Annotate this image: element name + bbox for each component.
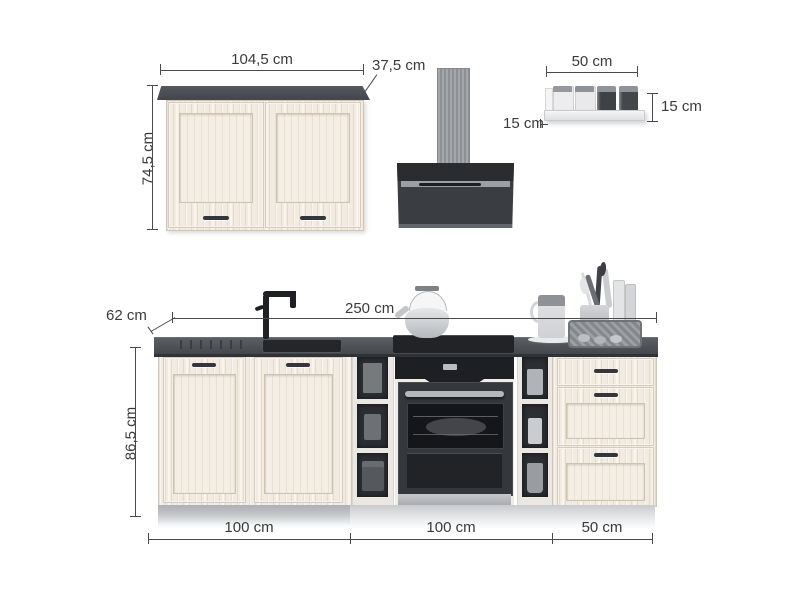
door-panel: [264, 374, 333, 494]
wall-cabinet-depth-label: 37,5 cm: [372, 57, 425, 74]
shelf-width-label: 50 cm: [546, 53, 638, 70]
kettle-body: [405, 308, 449, 338]
door-handle: [192, 363, 216, 367]
base-width-label: 250 cm: [345, 300, 394, 317]
shelf-compartment: [357, 453, 388, 497]
shelf-height-label: 15 cm: [661, 98, 702, 115]
oven-lower-panel: [407, 453, 502, 488]
wall-cabinet-right-handle: [300, 216, 326, 220]
storage-box: [362, 461, 384, 491]
tick: [130, 347, 141, 348]
sink-base-cabinet: [158, 353, 352, 507]
wall-cabinet-height-label: 74,5 cm: [140, 124, 157, 194]
door-handle: [286, 363, 310, 367]
wall-cabinet-width-line: [160, 70, 364, 71]
oven-control-panel: [395, 356, 514, 379]
shelf-compartment: [522, 404, 548, 448]
dark-jar: [619, 88, 638, 112]
base-depth-label: 62 cm: [106, 307, 147, 324]
cooktop: [393, 335, 514, 353]
oven-handle: [405, 391, 504, 397]
wall-cabinet-cornice: [157, 86, 370, 100]
egg: [578, 334, 590, 342]
shelf-depth-pointer: [540, 124, 548, 125]
segment-1-label: 100 cm: [148, 519, 350, 536]
egg: [594, 336, 606, 344]
base-height-label: 86,5 cm: [123, 399, 140, 469]
oven-window: [407, 403, 504, 449]
jar: [364, 414, 381, 440]
drawer-bottom: [557, 447, 654, 507]
wall-cabinet: [166, 100, 364, 231]
oven-door: [398, 382, 513, 496]
segment-2-label: 100 cm: [350, 519, 552, 536]
tick: [148, 533, 149, 544]
drawer-panel: [566, 403, 645, 439]
wall-cabinet-door-right: [265, 102, 361, 228]
sink-cabinet-door-right: [254, 357, 343, 503]
open-shelf-right: [517, 353, 554, 507]
sink-cabinet-door-left: [163, 357, 246, 503]
door-panel: [179, 113, 253, 203]
faucet: [263, 295, 269, 339]
hood-chimney: [437, 68, 470, 166]
shelf-compartment: [522, 453, 548, 497]
roasting-tray: [426, 418, 486, 436]
jar-lid: [575, 86, 594, 92]
tick: [647, 121, 658, 122]
jar-lid: [597, 86, 616, 92]
hood-vent-slot: [419, 183, 481, 186]
shelf-compartment: [357, 404, 388, 448]
oven-rack: [413, 416, 498, 417]
faucet-spout: [290, 291, 296, 308]
jar-lid: [553, 86, 572, 92]
door-panel: [276, 113, 350, 203]
shelf-depth-label: 15 cm: [503, 115, 544, 132]
kitchen-dimension-diagram: 104,5 cm 37,5 cm 74,5 cm 50 cm: [0, 0, 800, 600]
jar-lid: [619, 86, 638, 92]
shelf-height-line: [652, 93, 653, 122]
drawer-panel: [566, 463, 645, 501]
shelf-compartment: [357, 357, 388, 399]
tick: [540, 119, 541, 128]
tick: [656, 312, 657, 323]
dark-jar: [597, 88, 616, 112]
drawer-top: [557, 358, 654, 386]
drawer-handle: [594, 369, 618, 373]
base-height-line: [135, 347, 136, 517]
wall-cabinet-height-line: [152, 85, 153, 230]
shelf-width-line: [546, 72, 638, 73]
drawer-handle: [594, 393, 618, 397]
sink-basin: [262, 339, 342, 353]
wall-cabinet-depth-pointer: [363, 74, 378, 94]
tick: [652, 533, 653, 544]
segment-3-label: 50 cm: [552, 519, 652, 536]
jar: [527, 463, 543, 493]
tick: [552, 533, 553, 544]
wall-cabinet-left-handle: [203, 216, 229, 220]
base-width-line: [172, 318, 657, 319]
oven-display: [443, 364, 457, 370]
wall-cabinet-door-left: [168, 102, 264, 228]
tick: [637, 66, 638, 77]
tick: [147, 85, 158, 86]
oven-column: [395, 353, 514, 505]
sink-drainboard: [172, 340, 246, 349]
jar: [528, 418, 542, 444]
jug-lid: [538, 295, 565, 306]
tick: [147, 229, 158, 230]
segment-dim-line: [148, 539, 653, 540]
tick: [647, 93, 658, 94]
hood-bottom-edge: [399, 224, 512, 228]
tick: [546, 66, 547, 77]
drawer-handle: [594, 453, 618, 457]
door-panel: [173, 374, 236, 494]
wall-cabinet-width-label: 104,5 cm: [160, 51, 364, 68]
pantry-item: [363, 363, 382, 393]
canister: [527, 369, 543, 395]
hood-body: [397, 163, 514, 228]
drawer-unit: [552, 353, 657, 507]
tick: [172, 312, 173, 323]
tick: [160, 64, 161, 75]
open-shelf-left: [352, 353, 394, 507]
wall-shelf-board: [544, 110, 645, 121]
tick: [350, 533, 351, 544]
hood-glass-top: [397, 163, 514, 181]
tick: [130, 516, 141, 517]
tick: [363, 64, 364, 75]
drawer-middle: [557, 387, 654, 446]
oven-pedestal: [398, 494, 511, 505]
shelf-compartment: [522, 357, 548, 399]
egg: [610, 335, 622, 343]
